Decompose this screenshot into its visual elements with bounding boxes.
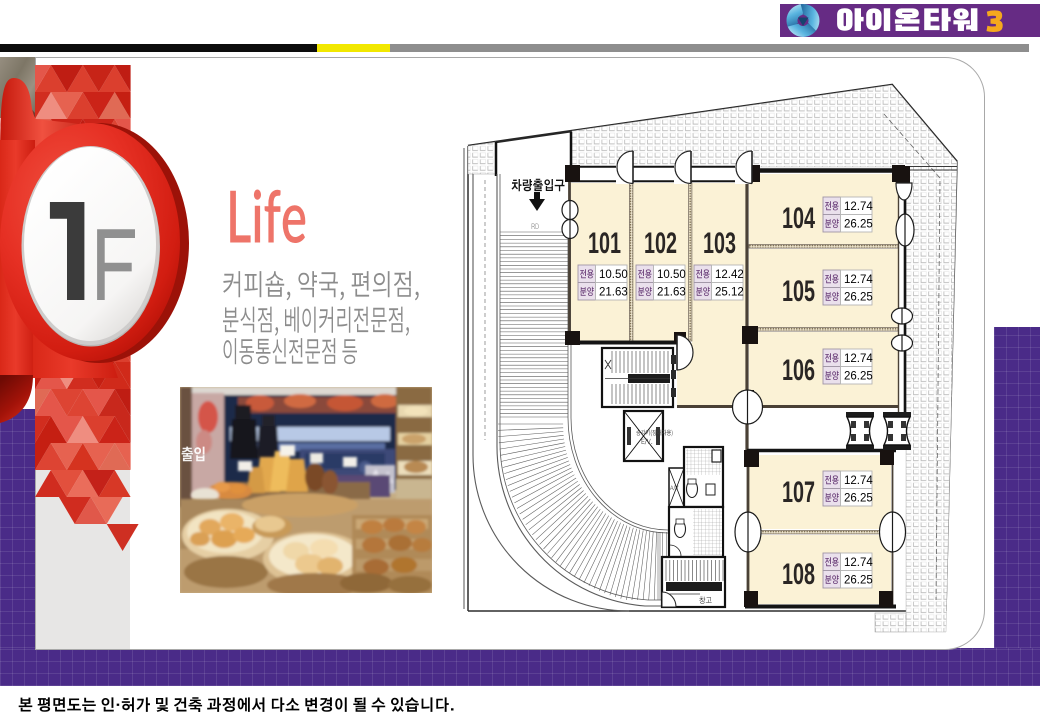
- svg-text:107: 107: [782, 476, 815, 509]
- svg-text:12.74: 12.74: [844, 274, 873, 286]
- svg-text:26.25: 26.25: [844, 292, 873, 304]
- svg-text:25.12: 25.12: [715, 287, 744, 299]
- svg-text:26.25: 26.25: [844, 575, 873, 587]
- svg-text:21.63: 21.63: [599, 287, 628, 299]
- svg-text:21.63: 21.63: [657, 287, 686, 299]
- svg-text:104: 104: [782, 202, 815, 235]
- svg-text:102: 102: [644, 227, 677, 260]
- svg-text:101: 101: [588, 227, 621, 260]
- svg-text:106: 106: [782, 354, 815, 387]
- svg-text:12.74: 12.74: [844, 475, 873, 487]
- svg-text:26.25: 26.25: [844, 371, 873, 383]
- svg-text:10.50: 10.50: [599, 269, 628, 281]
- svg-text:12.74: 12.74: [844, 557, 873, 569]
- svg-text:26.25: 26.25: [844, 219, 873, 231]
- svg-text:105: 105: [782, 275, 815, 308]
- svg-text:108: 108: [782, 558, 815, 591]
- svg-text:12.74: 12.74: [844, 353, 873, 365]
- svg-text:26.25: 26.25: [844, 493, 873, 505]
- svg-text:12.42: 12.42: [715, 269, 744, 281]
- svg-text:10.50: 10.50: [657, 269, 686, 281]
- svg-text:12.74: 12.74: [844, 201, 873, 213]
- svg-text:103: 103: [703, 227, 736, 260]
